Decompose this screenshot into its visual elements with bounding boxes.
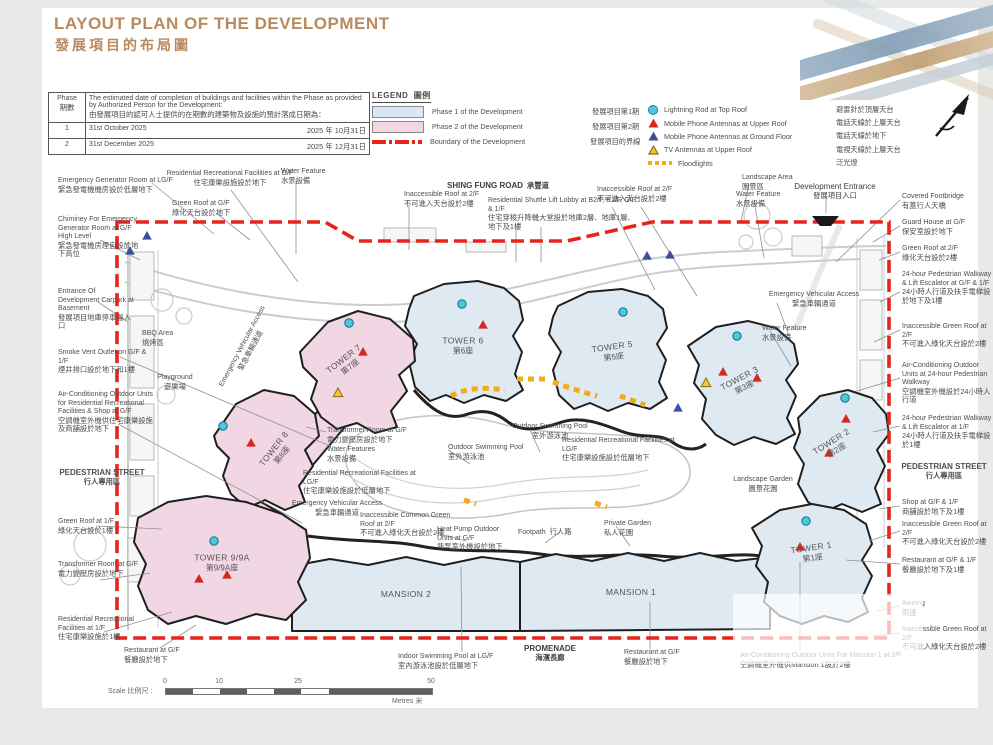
map-annotation: Guard House at G/F保安室設於地下 — [902, 219, 993, 236]
map-annotation: Water Feature水景設備 — [281, 168, 353, 185]
map-annotation: 24-hour Pedestrian Walkway & Lift Escala… — [902, 271, 992, 306]
map-annotation: Air-Conditioning Outdoor Units at 24-hou… — [902, 362, 993, 405]
map-annotation: BBQ Area燒烤區 — [142, 330, 204, 347]
lightning-rod-icon — [841, 394, 849, 402]
scale-bar: Scale 比例尺 : 0 10 25 50 Metres 米 — [108, 679, 448, 705]
map-annotation: Covered Footbridge有蓋行人天橋 — [902, 193, 993, 210]
scale-bar-segments — [165, 688, 433, 695]
tower-label: MANSION 1 — [606, 587, 656, 597]
map-annotation: Air-Conditioning Outdoor Units for Resid… — [58, 391, 154, 434]
map-annotation: PEDESTRIAN STREET行人專用區 — [896, 462, 992, 481]
mobile-antenna-ground-icon — [142, 231, 152, 240]
map-annotation: Green Roof at 2/F綠化天台設於2樓 — [902, 245, 993, 262]
map-annotation: Entrance Of Development Carpark at Basem… — [58, 288, 138, 331]
lightning-rod-icon — [802, 517, 810, 525]
map-annotation: Restaurant at G/F餐廳設於地下 — [124, 647, 212, 664]
entrance-marker — [812, 216, 839, 226]
map-annotation: Development Entrance發展項目入口 — [770, 182, 900, 201]
map-annotation: Footpath行人路 — [518, 528, 608, 538]
map-annotation: Water Feature水景設備 — [762, 325, 834, 342]
map-annotation: PEDESTRIAN STREET行人專用區 — [48, 468, 156, 487]
map-annotation: Green Roof at 1/F綠化天台設於1樓 — [58, 518, 170, 535]
tower-label: MANSION 2 — [381, 589, 431, 599]
map-annotation: 24-hour Pedestrian Walkway & Lift Escala… — [902, 415, 992, 450]
map-annotation: Transformer Room at G/F電力變壓房設於地下 — [58, 561, 144, 578]
map-annotation: Inaccessible Green Roof at 2/F不可進入綠化天台設於… — [902, 521, 992, 547]
map-annotation: Emergency Vehicular Access緊急車輛通道 — [760, 291, 868, 308]
mobile-antenna-ground-icon — [673, 403, 683, 412]
mobile-antenna-ground-icon — [642, 251, 652, 260]
map-annotation: Restaurant at G/F & 1/F餐廳設於地下及1樓 — [902, 557, 993, 574]
lightning-rod-icon — [733, 332, 741, 340]
mobile-antenna-ground-icon — [665, 250, 675, 259]
tower-label: TOWER 6第6座 — [442, 336, 483, 357]
map-annotation: Inaccessible Roof at 2/F不可進入天台設於2樓 — [597, 186, 683, 203]
watermark-overlay — [733, 594, 923, 664]
map-annotation: Outdoor Swimming Pool室外游泳池 — [448, 444, 566, 461]
map-annotation: Restaurant at G/F餐廳設於地下 — [624, 649, 712, 666]
lightning-rod-icon — [219, 422, 227, 430]
map-annotation: Residential Recreational Facilities at L… — [562, 437, 690, 463]
map-annotation: Green Roof at G/F綠化天台設於地下 — [172, 200, 272, 217]
tower-label: TOWER 9/9A第9/9A座 — [194, 553, 249, 574]
map-annotation: Private Garden私人花園 — [604, 520, 692, 537]
map-annotation: Residential Recreational Facilities at 1… — [58, 616, 144, 642]
map-annotation: Water Features水景設備 — [327, 446, 439, 463]
map-annotation: Heat Pump Outdoor Units at G/F熱泵室外機設於地下 — [437, 526, 517, 552]
lightning-rod-icon — [345, 319, 353, 327]
map-annotation: Chiminey For Emergency Generator Room at… — [58, 216, 142, 259]
map-annotation: Transformer Room at G/F電力變壓房設於地下 — [327, 427, 439, 444]
map-annotation: Playground遊樂場 — [139, 374, 211, 391]
compass-north-icon — [926, 88, 978, 143]
lightning-rod-icon — [210, 537, 218, 545]
lightning-rod-icon — [619, 308, 627, 316]
map-annotation: Smoke Vent Outlet on G/F & 1/F煙井排口設於地下和1… — [58, 349, 154, 375]
map-annotation: Landscape Garden園景花園 — [714, 476, 812, 493]
map-annotation: Residential Recreational Facilities at G… — [166, 170, 294, 187]
layout-plan-page: LAYOUT PLAN OF THE DEVELOPMENT 發展項目的布局圖 … — [0, 0, 993, 745]
map-annotation: Residential Recreational Facilities at L… — [303, 470, 425, 496]
map-annotation: PROMENADE海濱長廊 — [505, 644, 595, 663]
lightning-rod-icon — [458, 300, 466, 308]
map-annotation: Shop at G/F & 1/F商舖設於地下及1樓 — [902, 499, 993, 516]
map-annotation: Inaccessible Green Roof at 2/F不可進入綠化天台設於… — [902, 323, 992, 349]
